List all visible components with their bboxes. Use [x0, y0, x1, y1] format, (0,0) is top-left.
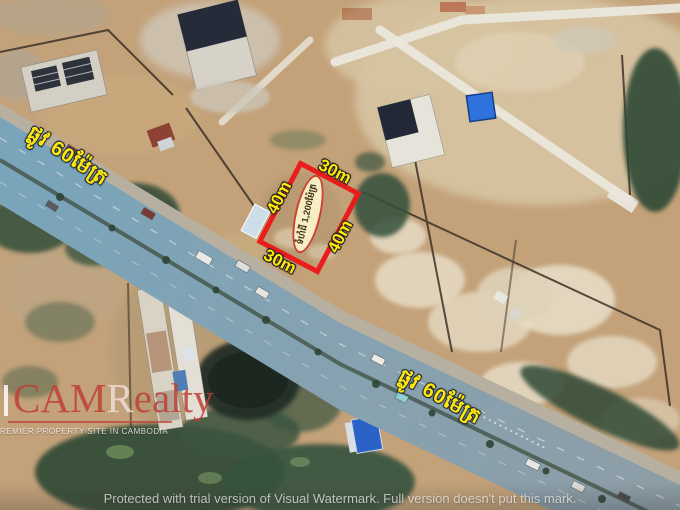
brand-cam: CAM — [13, 375, 106, 421]
brand-wordmark: CAMRealty — [13, 376, 213, 421]
map-canvas: 30m 30m 40m 40m ទំហំដី 1,200ម៉ែត្រ ផ្លូវ… — [0, 0, 680, 510]
brand-logo-bar — [4, 385, 8, 416]
brand-underline — [8, 421, 172, 423]
blue-tarp-structure — [466, 92, 495, 121]
brand-ealty: ealty — [134, 375, 214, 421]
brand-watermark: CAMRealty REMIER PROPERTY SITE IN CAMBOD… — [0, 380, 230, 442]
brand-tagline: REMIER PROPERTY SITE IN CAMBODIA — [0, 427, 185, 436]
brand-r: R — [106, 375, 133, 421]
trial-watermark-text: Protected with trial version of Visual W… — [0, 491, 680, 506]
